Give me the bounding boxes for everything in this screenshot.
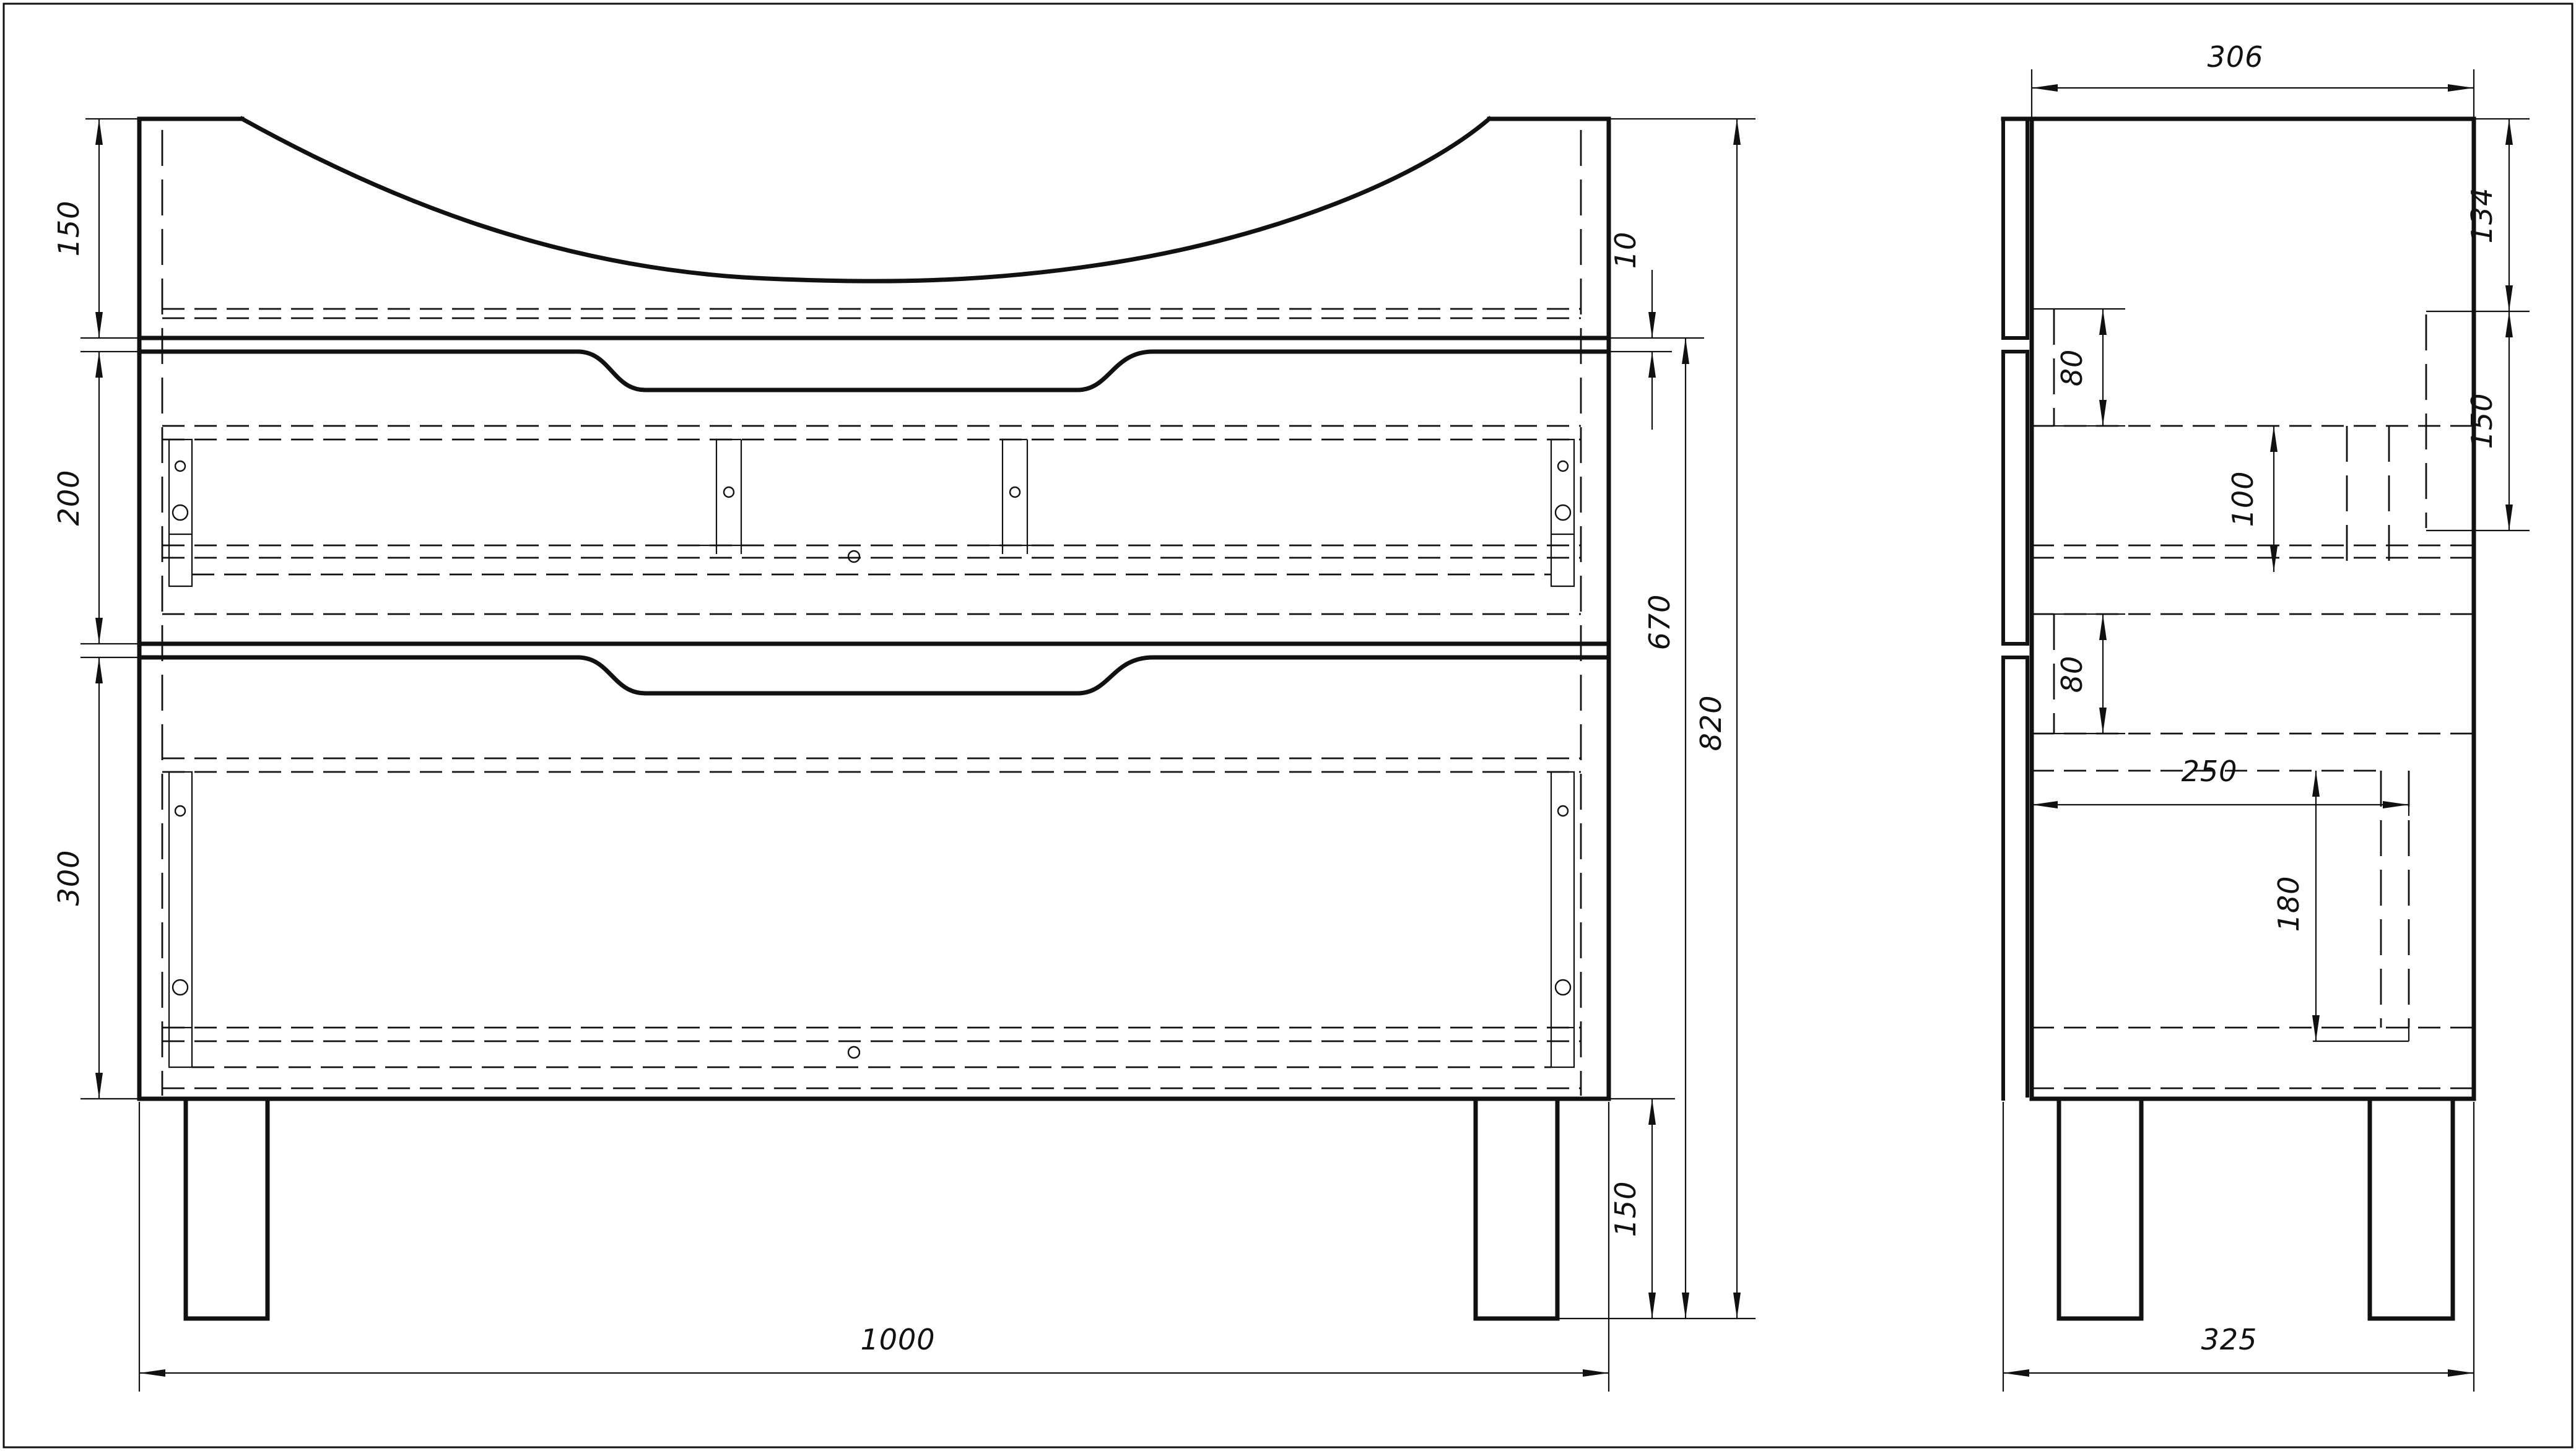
center-screw-hole-drawer2 bbox=[848, 1047, 859, 1058]
dim-label-front-reveal-gap: 10 bbox=[1609, 232, 1642, 269]
dim-label-side-shelf-to-rail: 150 bbox=[2465, 393, 2499, 449]
dim-label-front-overall-height: 820 bbox=[1694, 695, 1728, 751]
dim-label-front-carcass-height: 670 bbox=[1643, 594, 1676, 651]
dim-label-side-upper-rail-offset: 80 bbox=[2055, 349, 2089, 387]
dim-label-side-overall-depth: 306 bbox=[2208, 40, 2264, 74]
side-view: 306 134 150 80 100 80 250 180 325 bbox=[2003, 40, 2530, 1392]
side-facade-strips bbox=[2003, 119, 2027, 1099]
dim-label-side-drawer-inner-depth: 250 bbox=[2182, 755, 2238, 788]
dim-label-side-lower-rail-offset: 80 bbox=[2055, 656, 2089, 693]
dim-label-front-overall-width: 1000 bbox=[860, 1323, 935, 1356]
side-legs bbox=[2059, 1101, 2453, 1319]
dim-label-front-leg-height: 150 bbox=[1609, 1181, 1642, 1237]
dim-label-front-drawer2-height: 300 bbox=[52, 850, 85, 906]
drawing-sheet: 150 200 300 10 670 820 150 1000 bbox=[0, 0, 2576, 1451]
front-hidden-lines bbox=[162, 130, 1581, 1096]
sink-top-curve bbox=[242, 119, 1489, 281]
drawer-1-front bbox=[139, 352, 1609, 390]
side-outline bbox=[2003, 119, 2474, 1099]
side-dimensions: 306 134 150 80 100 80 250 180 325 bbox=[2003, 40, 2509, 1373]
front-view: 150 200 300 10 670 820 150 1000 bbox=[52, 119, 1756, 1392]
center-screw-hole-drawer1 bbox=[848, 551, 859, 562]
dim-label-side-top-to-shelf: 134 bbox=[2465, 188, 2499, 244]
dim-label-side-rail-height: 100 bbox=[2226, 471, 2260, 527]
drawer-2-front bbox=[139, 657, 1609, 693]
dim-label-front-drawer1-height: 200 bbox=[52, 470, 85, 526]
dim-label-front-top-section: 150 bbox=[52, 201, 85, 257]
front-legs bbox=[186, 1101, 1557, 1319]
front-dimensions: 150 200 300 10 670 820 150 1000 bbox=[52, 119, 1737, 1373]
drawing-canvas: 150 200 300 10 670 820 150 1000 bbox=[0, 0, 2576, 1451]
front-slide-brackets bbox=[169, 440, 1574, 1067]
cabinet-outline bbox=[139, 119, 1609, 1099]
dim-label-side-base-depth: 325 bbox=[2201, 1323, 2258, 1356]
dim-label-side-lower-rail-height: 180 bbox=[2272, 876, 2305, 932]
